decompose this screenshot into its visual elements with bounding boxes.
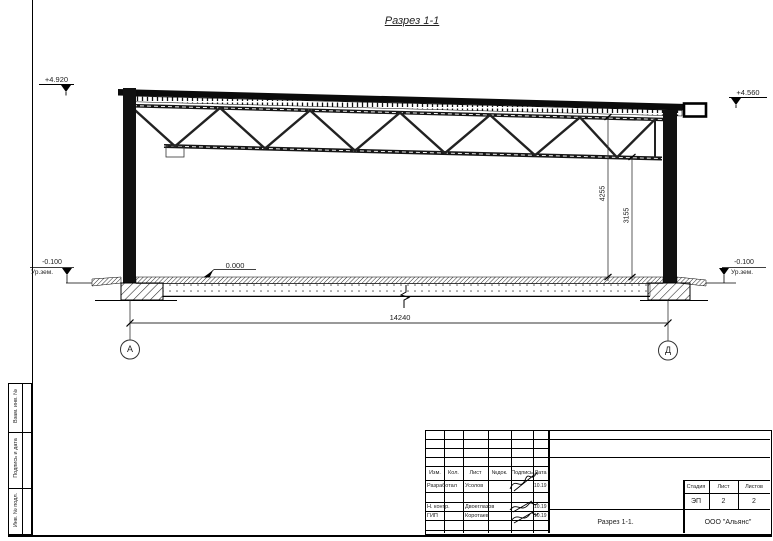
axis-label-left: А: [120, 344, 140, 354]
tb-name-gip: Коротаев: [465, 511, 510, 520]
grid-line: [22, 384, 23, 536]
title-block: Изм. Кол. Лист №док. Подпись Дата Разраб…: [425, 430, 772, 535]
ground-level-right-value: -0.100: [722, 259, 766, 266]
ground-level-left-value: -0.100: [30, 259, 74, 266]
ground-level-right-label: Ур.зем.: [731, 269, 753, 276]
ground-level-left-label: Ур.зем.: [31, 269, 53, 276]
strip-label-vzam: Взам. инв. №: [13, 384, 19, 428]
grid-line: [463, 431, 464, 533]
axis-label-right: Д: [658, 345, 678, 355]
grid-line: [426, 439, 770, 440]
level-top-right: +4.560: [729, 88, 767, 97]
tb-role-ncontrol: Н. контр.: [427, 502, 463, 511]
tb-stage-label: Стадия: [683, 480, 709, 493]
strip-label-podpis: Подпись и дата: [13, 433, 19, 483]
tb-role-developer: Разработал: [427, 480, 463, 492]
drawing-title: Разрез 1-1: [352, 15, 472, 27]
tb-company: ООО "Альянс": [683, 509, 773, 535]
tb-doc-name: Разрез 1-1.: [548, 509, 683, 535]
apron-left: [92, 277, 121, 286]
grid-line: [426, 530, 548, 531]
drawing-sheet: Разрез 1-1 +4.920 +4.560 0.000 -0.100 Ур…: [0, 0, 773, 541]
tb-role-gip: ГИП: [427, 511, 463, 520]
tb-sheet-label: Лист: [709, 480, 738, 493]
level-floor: 0.000: [214, 261, 256, 270]
grid-line: [426, 457, 770, 458]
vertical-dimensions: [605, 114, 636, 281]
tb-header-izm: Изм.: [426, 466, 444, 480]
grid-line: [426, 448, 548, 449]
roof-end-detail: [684, 104, 706, 117]
span-dimension: [121, 301, 678, 361]
strip-label-inv: Инв. № подл.: [13, 488, 19, 532]
tb-sheets-label: Листов: [738, 480, 770, 493]
tb-name-developer: Усолов: [465, 480, 510, 492]
dim-height-4255: 4255: [600, 181, 607, 207]
tb-stage-value: ЭП: [683, 493, 709, 509]
tb-header-list: Лист: [463, 466, 488, 480]
tb-header-kol: Кол.: [444, 466, 463, 480]
signatures: [508, 465, 540, 527]
column-left: [123, 88, 136, 283]
tb-sheet-value: 2: [709, 493, 738, 509]
column-right: [663, 110, 677, 283]
tb-name-ncontrol: Двоеглазов: [465, 502, 510, 511]
dim-span: 14240: [378, 313, 422, 322]
side-strip: Взам. инв. № Подпись и дата Инв. № подл.: [8, 383, 32, 535]
tb-sheets-value: 2: [738, 493, 770, 509]
dim-height-3155: 3155: [624, 203, 631, 229]
floor-slab: [136, 277, 663, 308]
level-top-left: +4.920: [39, 75, 74, 84]
